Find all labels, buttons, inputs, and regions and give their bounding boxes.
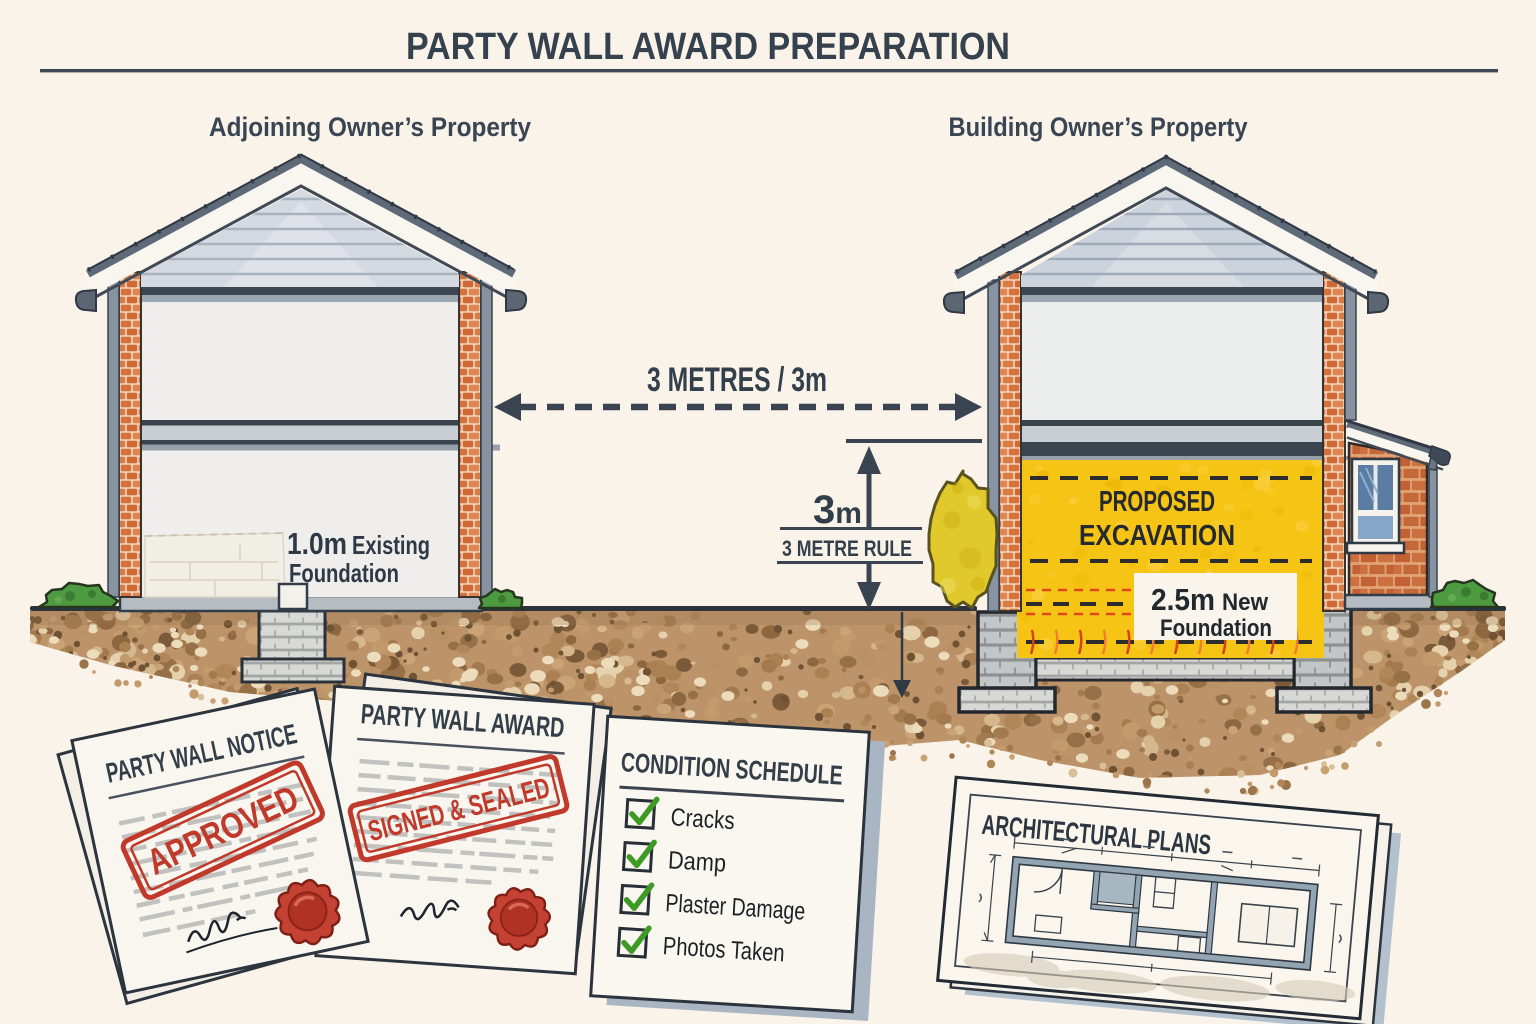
svg-text:Foundation: Foundation bbox=[289, 558, 399, 588]
svg-text:New: New bbox=[1222, 589, 1268, 616]
svg-text:3 METRES / 3m: 3 METRES / 3m bbox=[647, 361, 827, 399]
svg-text:EXCAVATION: EXCAVATION bbox=[1079, 520, 1235, 552]
svg-text:3 METRE RULE: 3 METRE RULE bbox=[782, 536, 912, 561]
svg-text:Foundation: Foundation bbox=[1160, 615, 1272, 642]
svg-text:PROPOSED: PROPOSED bbox=[1099, 486, 1215, 518]
svg-text:Cracks: Cracks bbox=[670, 803, 736, 835]
svg-text:Existing: Existing bbox=[352, 530, 430, 560]
svg-text:2.5m: 2.5m bbox=[1151, 582, 1215, 617]
svg-text:1.0m: 1.0m bbox=[287, 526, 347, 561]
svg-text:Damp: Damp bbox=[667, 846, 727, 877]
svg-text:PARTY WALL AWARD PREPARATION: PARTY WALL AWARD PREPARATION bbox=[406, 26, 1010, 68]
svg-text:Building Owner’s Property: Building Owner’s Property bbox=[949, 112, 1248, 142]
svg-text:Adjoining Owner’s Property: Adjoining Owner’s Property bbox=[209, 112, 531, 142]
